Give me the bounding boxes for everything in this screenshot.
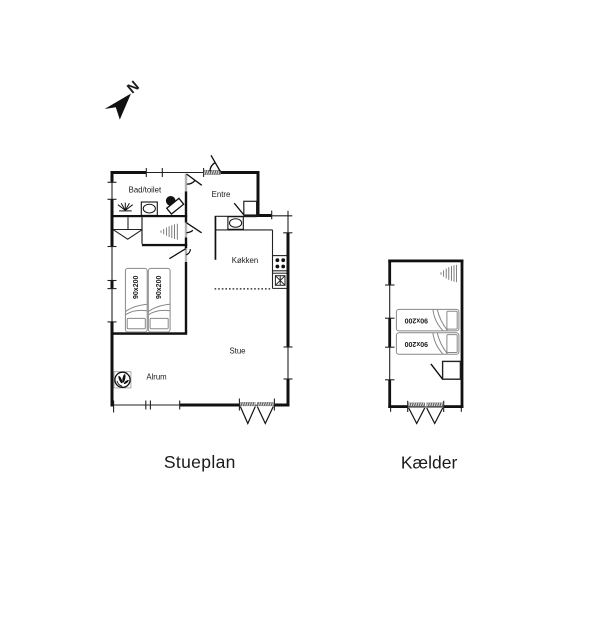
svg-text:Stueplan: Stueplan	[164, 452, 236, 472]
svg-text:90x200: 90x200	[405, 340, 428, 347]
svg-text:Alrum: Alrum	[146, 373, 166, 382]
svg-text:Bad/toilet: Bad/toilet	[129, 185, 162, 194]
svg-text:Stue: Stue	[229, 347, 245, 356]
svg-text:Køkken: Køkken	[232, 256, 258, 265]
svg-text:Kælder: Kælder	[401, 452, 458, 472]
svg-text:90x200: 90x200	[133, 276, 140, 299]
svg-text:90x200: 90x200	[156, 276, 163, 299]
svg-text:90x200: 90x200	[405, 316, 428, 323]
svg-text:Entre: Entre	[212, 190, 231, 199]
